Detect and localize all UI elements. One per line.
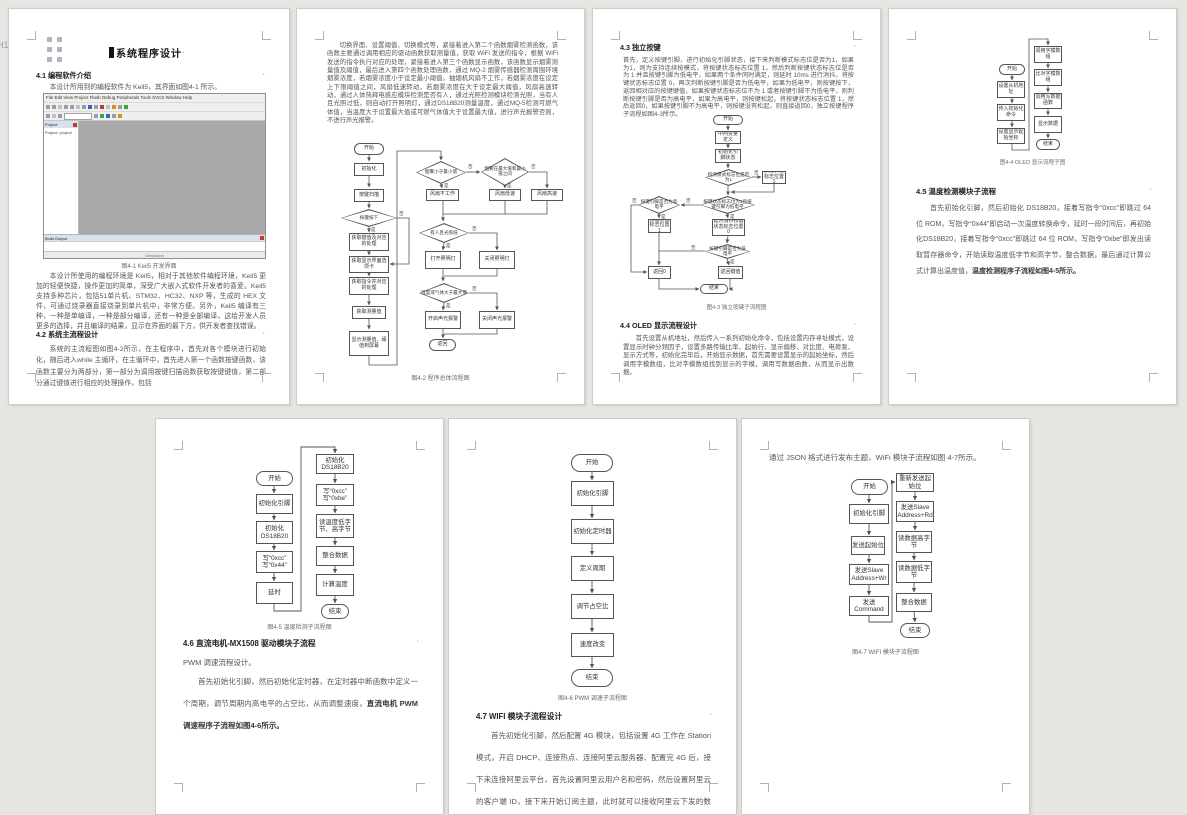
chapter-heading-row: 系统程序设计 · — [109, 45, 271, 60]
close-icon[interactable] — [73, 123, 77, 127]
flow-node: 初始化定时器 — [571, 519, 614, 544]
flow-decision: 温度或气体大于最大值 — [419, 283, 469, 303]
chapter-title: 系统程序设计 — [116, 45, 182, 60]
flow-decision: 检测模式标志位是否为1 — [705, 169, 752, 186]
margin-mark — [907, 373, 916, 382]
margin-mark — [611, 31, 620, 40]
build-output-panel: Build Output — [44, 234, 265, 251]
flow-node: 定义周期 — [571, 556, 614, 581]
section-4-7-row: 4.7 WIFI 模块子流程设计 · — [476, 711, 712, 722]
figure-caption: 图4-7 WIFI 模块子流程图 — [742, 647, 1029, 656]
flow-node: 风扇低速 — [489, 189, 521, 201]
margin-mark — [467, 441, 476, 450]
flow-node-start: 开始 — [851, 479, 888, 495]
paragraph-mark: · — [263, 330, 265, 340]
branch-label: 否 — [472, 286, 477, 292]
branch-label: 是 — [507, 183, 512, 189]
flow-node: 风扇不工作 — [426, 189, 459, 201]
page-3: 4.3 独立按键 · 首先，定义按键引脚，进行初始化引脚状态，接下来判断模式标志… — [592, 8, 881, 405]
margin-mark — [709, 783, 718, 792]
page-2: 切换界面、设置阈值、切换模式等，紧接着进入第二个函数烟雾检测函数，该函数主要通过… — [296, 8, 585, 405]
toolbar-icon[interactable] — [76, 105, 80, 109]
toolbar-icon[interactable] — [52, 114, 56, 118]
toolbar-icon[interactable] — [118, 114, 122, 118]
flow-node: 设置显示起始坐标 — [997, 128, 1025, 144]
flow-node-start: 开始 — [256, 471, 293, 486]
branch-label: 否 — [632, 198, 637, 204]
margin-mark — [262, 31, 271, 40]
flow-node: 初始化DS18B20 — [316, 454, 354, 474]
document-canvas: H1 系统程序设计 · 4.1 编程软件介绍 · 本设计所用到的编程软件为 Ke… — [0, 0, 1187, 815]
margin-mark — [1002, 441, 1011, 450]
project-panel: Project Project: project — [44, 121, 79, 234]
flow-decision: 按键按下 — [341, 209, 397, 227]
section-heading: 4.7 WIFI 模块子流程设计 — [476, 711, 562, 722]
paragraph: 首先初始化引脚，然后初始化 DS18B20，接着写指令“0xcc”即跳过 64 … — [916, 201, 1151, 280]
branch-label: 否 — [691, 245, 696, 251]
paragraph-mark: · — [1150, 186, 1152, 197]
margin-mark — [467, 783, 476, 792]
build-output-content — [44, 241, 265, 251]
flow-node: 整合数据 — [896, 593, 932, 612]
flow-node: 发送Command — [849, 596, 889, 616]
figure-caption: 图4-5 温度检测子流程图 — [156, 622, 443, 631]
margin-mark — [709, 441, 718, 450]
flow-node: 中间变量定义 — [715, 131, 741, 144]
status-bar: Simulation — [44, 251, 265, 258]
paragraph: PWM 调速流程设计。 — [183, 657, 418, 668]
margin-mark — [27, 373, 36, 382]
toolbar-icon[interactable] — [58, 114, 62, 118]
toolbar-icon[interactable] — [94, 114, 98, 118]
branch-label: 否 — [686, 198, 691, 204]
paragraph: 本设计所使用的编程环境是 Keil5，相对于其他软件编程环境，Keil5 更加的… — [36, 272, 266, 332]
flow-node: 获取指令并对应的处理 — [349, 277, 389, 295]
flow-node-end: 结束 — [571, 669, 613, 687]
flow-node: 整合数据 — [316, 546, 354, 566]
flowchart-wifi: 开始 初始化引脚 发送起始位 发送Slave Address+Wr 发送Comm… — [742, 419, 1029, 814]
toolbar-icon[interactable] — [106, 114, 110, 118]
flow-node: 计算温度 — [316, 574, 354, 596]
toolbar-icon[interactable] — [88, 105, 92, 109]
figure-caption: 图4-3 独立按键子流程图 — [593, 303, 880, 311]
flow-node-end: 结束 — [900, 623, 930, 638]
target-select[interactable] — [64, 113, 92, 120]
paragraph: 本设计所用到的编程软件为 Keil5，其界面如图4-1 所示。 — [36, 83, 266, 92]
flow-node: 延时 — [256, 582, 293, 604]
section-4-4-row: 4.4 OLED 显示流程设计 · — [620, 321, 856, 331]
paragraph: 首先设置从机地址，然后传入一系列初始化命令，包括设置内存寻址模式，设置显示时钟分… — [623, 335, 854, 378]
flow-node-start: 开始 — [713, 115, 743, 125]
flow-node: 获取键值及对应的处理 — [349, 233, 389, 251]
margin-mark — [1149, 373, 1158, 382]
flow-node-start: 开始 — [571, 454, 613, 472]
flow-node-end: 结束 — [1036, 139, 1060, 150]
node-line: 写“0x44” — [262, 562, 287, 569]
flow-node: 按键状态标志位置1 — [648, 219, 671, 233]
page-1: 系统程序设计 · 4.1 编程软件介绍 · 本设计所用到的编程软件为 Keil5… — [8, 8, 290, 405]
flow-node: 延时消抖按键状态标志位置0 — [712, 219, 745, 236]
flow-node: 按键扫描 — [354, 189, 384, 202]
flow-node: 发送Slave Address+Rd — [896, 501, 934, 522]
margin-mark — [557, 31, 566, 40]
section-heading: 4.4 OLED 显示流程设计 — [620, 321, 697, 331]
section-4-5-row: 4.5 温度检测模块子流程 · — [916, 186, 1152, 197]
branch-label: 否 — [468, 164, 473, 170]
page-7: 通过 JSON 格式进行发布主题，WiFi 模块子流程如图 4-7所示。 开始 … — [741, 418, 1030, 815]
flow-connectors — [156, 419, 444, 815]
keil-ide-screenshot: File Edit View Project Flash Debug Perip… — [43, 93, 266, 259]
flow-node: 初始化引脚状态 — [715, 149, 741, 163]
paragraph-mark: · — [182, 49, 184, 56]
flow-node: 初始化 — [354, 163, 384, 176]
flow-node: 返回0 — [648, 266, 671, 279]
flow-node: 显示测量值、阈值到屏幕 — [349, 331, 389, 356]
toolbar-icon[interactable] — [46, 114, 50, 118]
margin-mark — [174, 783, 183, 792]
keil-menu-bar[interactable]: File Edit View Project Flash Debug Perip… — [44, 94, 265, 102]
flow-connectors — [742, 419, 1030, 815]
toolbar-icon[interactable] — [100, 114, 104, 118]
flowchart-main: 开始 初始化 按键扫描 按键按下 获取键值及对应的处理 获取显示界面选项卡 获取… — [297, 9, 584, 404]
section-4-6-row: 4.6 直流电机-MX1508 驱动模块子流程 · — [183, 638, 419, 649]
flow-node-end: 结束 — [700, 284, 728, 294]
flow-node: 传入初始化命令 — [997, 104, 1025, 121]
text-cursor — [109, 47, 114, 58]
margin-mark — [611, 373, 620, 382]
flow-node: 调节占空比 — [571, 594, 614, 619]
branch-label: 否 — [472, 226, 477, 232]
section-heading: 4.1 编程软件介绍 — [36, 71, 91, 81]
flow-node: 速度改变 — [571, 633, 614, 657]
margin-mark — [760, 441, 769, 450]
margin-mark — [760, 783, 769, 792]
branch-label: 是 — [371, 227, 376, 233]
branch-label: 否 — [399, 211, 404, 217]
margin-mark — [27, 31, 36, 40]
flow-node: 写“0xcc”写“0x44” — [256, 551, 293, 573]
flow-node: 显示数据 — [1034, 116, 1062, 133]
section-heading: 4.6 直流电机-MX1508 驱动模块子流程 — [183, 638, 316, 649]
toolbar-icon[interactable] — [70, 105, 74, 109]
flow-node: 发送起始位 — [851, 536, 885, 555]
toolbar-icon[interactable] — [46, 105, 50, 109]
flow-node: 初始化DS18B20 — [256, 521, 293, 544]
flow-node: 开启声光报警 — [425, 311, 461, 329]
margin-mark — [853, 31, 862, 40]
keil-toolbar-2 — [44, 111, 265, 120]
close-icon[interactable] — [260, 236, 264, 240]
flow-node: 按键状态标志位置1 — [762, 171, 786, 184]
paragraph-mark: · — [263, 71, 265, 81]
figure-caption: 图4-4 OLED 显示流程子图 — [889, 158, 1176, 166]
node-line: 写“0xbe” — [323, 495, 348, 502]
section-heading: 4.2 系统主流程设计 — [36, 330, 98, 340]
figure-caption: 图4-2 程序总体流程图 — [297, 373, 584, 382]
toolbar-icon[interactable] — [52, 105, 56, 109]
flow-node: 关闭照明灯 — [479, 251, 515, 269]
flow-node-start: 开始 — [354, 143, 384, 155]
branch-label: 是 — [661, 214, 666, 220]
drag-handle-icon[interactable] — [47, 37, 62, 62]
page-6: 开始 初始化引脚 初始化定时器 定义周期 调节占空比 速度改变 结束 图4-6 … — [448, 418, 737, 815]
flow-decision: 有人且光照低 — [419, 223, 469, 243]
paragraph-text-bold: 温度检测程序子流程如图4-5所示。 — [972, 268, 1080, 275]
branch-label: 是 — [446, 303, 451, 309]
flow-node: 获取测量值 — [352, 306, 386, 319]
flow-decision: 烟雾小于最小值 — [416, 161, 466, 184]
flow-node: 风扇高速 — [531, 189, 563, 201]
flow-node: 返回键值 — [718, 266, 743, 279]
section-4-2-row: 4.2 系统主流程设计 · — [36, 330, 265, 340]
figure-caption: 图4-1 Keil5 开发界面 — [9, 261, 289, 270]
page-4: 开始 设置从机地址 传入初始化命令 设置显示起始坐标 调用字模数组 比对字模数组… — [888, 8, 1177, 405]
toolbar-icon[interactable] — [118, 105, 122, 109]
flow-node-start: 开始 — [999, 64, 1025, 75]
node-line: 写“0xcc” — [323, 488, 347, 495]
branch-label: 是 — [730, 214, 735, 220]
flow-node: 初始化引脚 — [849, 504, 889, 524]
toolbar-icon[interactable] — [94, 105, 98, 109]
flow-node: 读温度低字节、高字节 — [316, 514, 354, 538]
paragraph: 首先初始化引脚，然后初始化定时器，在定时器中断函数中定义一个周期，调节周期内高电… — [183, 671, 418, 737]
flowchart-temperature: 开始 初始化引脚 初始化DS18B20 写“0xcc”写“0x44” 延时 初始… — [156, 419, 443, 814]
margin-mark — [416, 441, 425, 450]
paragraph-text: 首先初始化引脚，然后初始化 DS18B20，接着写指令“0xcc”即跳过 64 … — [916, 205, 1151, 275]
branch-label: 是 — [446, 243, 451, 249]
flow-node: 调用字模数组 — [1034, 46, 1062, 63]
figure-caption: 图4-6 PWM 调速子流程图 — [449, 693, 736, 702]
flow-node: 关闭声光报警 — [479, 311, 515, 329]
build-output-title: Build Output — [45, 236, 67, 241]
keil-toolbar-1 — [44, 102, 265, 111]
toolbar-icon[interactable] — [112, 114, 116, 118]
margin-mark — [174, 441, 183, 450]
flow-node: 读数据高字节 — [896, 531, 932, 553]
flow-node: 初始化引脚 — [256, 494, 293, 514]
node-line: 写“0xcc” — [263, 555, 287, 562]
margin-mark — [907, 31, 916, 40]
branch-label: 是 — [730, 259, 735, 265]
flow-node: 获取显示界面选项卡 — [349, 256, 389, 273]
flow-node: 设置从机地址 — [997, 81, 1025, 98]
flow-node: 比对字模数组 — [1034, 69, 1062, 86]
margin-mark — [853, 373, 862, 382]
flow-node: 重新发送起始位 — [896, 473, 934, 492]
paragraph-mark: · — [710, 711, 712, 722]
toolbar-icon[interactable] — [106, 105, 110, 109]
margin-mark — [1002, 783, 1011, 792]
editor-area[interactable] — [79, 121, 265, 234]
flow-node: 写“0xcc”写“0xbe” — [316, 484, 354, 506]
margin-mark — [1149, 31, 1158, 40]
toolbar-icon[interactable] — [124, 105, 128, 109]
paragraph: 首先初始化引脚，然后配置 4G 模块，包括设置 4G 工作在 Station 模… — [476, 725, 711, 815]
section-heading: 4.5 温度检测模块子流程 — [916, 186, 996, 197]
project-panel-title: Project — [45, 122, 57, 127]
toolbar-icon[interactable] — [112, 105, 116, 109]
flow-node-end: 返回 — [429, 339, 456, 351]
flow-decision: 按键状态标志位为1且按键引脚为低电平 — [700, 196, 755, 214]
flow-node: 打开照明灯 — [425, 251, 461, 269]
toolbar-icon[interactable] — [100, 105, 104, 109]
branch-label: 否 — [531, 164, 536, 170]
paragraph-mark: · — [854, 321, 856, 331]
branch-label: 是 — [444, 183, 449, 189]
margin-mark — [315, 373, 324, 382]
flow-node: 调用写数据函数 — [1034, 93, 1062, 109]
flow-node: 初始化引脚 — [571, 481, 614, 506]
branch-label: 否 — [754, 170, 759, 176]
paragraph: 系统的主流程图如图4-2所示，在主程序中，首先对各个模块进行初始化，随后进入wh… — [36, 344, 266, 389]
page-5: 开始 初始化引脚 初始化DS18B20 写“0xcc”写“0x44” 延时 初始… — [155, 418, 444, 815]
flow-node: 发送Slave Address+Wr — [849, 564, 889, 585]
project-tree-item[interactable]: Project: project — [44, 128, 78, 234]
toolbar-icon[interactable] — [64, 105, 68, 109]
flow-node: 读数据低字节 — [896, 561, 932, 583]
margin-mark — [416, 783, 425, 792]
paragraph-mark: · — [417, 638, 419, 649]
margin-mark — [557, 373, 566, 382]
flow-decision: 按键引脚是否为高电平 — [638, 196, 680, 214]
section-4-1-row: 4.1 编程软件介绍 · — [36, 71, 265, 81]
flow-decision: 烟雾在最大值和最小值之间 — [481, 158, 529, 186]
margin-mark — [315, 31, 324, 40]
toolbar-icon[interactable] — [58, 105, 62, 109]
flow-node-end: 结束 — [321, 604, 349, 619]
flow-decision: 按键引脚是否为低电平 — [705, 244, 750, 259]
toolbar-icon[interactable] — [82, 105, 86, 109]
margin-mark — [262, 373, 271, 382]
